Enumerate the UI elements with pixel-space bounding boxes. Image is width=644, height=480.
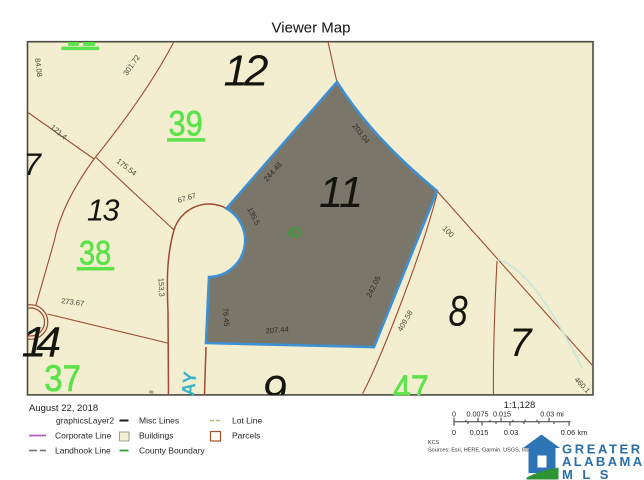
svg-text:9: 9 [262, 366, 287, 416]
svg-text:0.0075: 0.0075 [467, 410, 489, 419]
svg-text:0.03 mi: 0.03 mi [540, 410, 564, 419]
svg-text:Landhook Line: Landhook Line [55, 446, 111, 456]
svg-text:8: 8 [449, 288, 468, 335]
svg-text:37: 37 [44, 358, 81, 399]
svg-text:Viewer Map: Viewer Map [272, 20, 351, 37]
svg-text:7: 7 [509, 321, 533, 365]
svg-text:0: 0 [452, 410, 456, 419]
svg-text:graphicsLayer2: graphicsLayer2 [56, 416, 114, 426]
svg-text:Corporate Line: Corporate Line [55, 431, 112, 441]
svg-text:Parcels: Parcels [232, 431, 260, 441]
svg-text:47: 47 [393, 369, 429, 410]
svg-text:Buildings: Buildings [139, 431, 174, 441]
svg-text:38: 38 [79, 233, 111, 272]
svg-text:0.06 km: 0.06 km [561, 428, 588, 437]
svg-text:39: 39 [169, 104, 203, 143]
svg-text:153.3: 153.3 [157, 278, 167, 297]
svg-text:County Boundary: County Boundary [139, 446, 205, 456]
svg-text:7: 7 [24, 146, 43, 182]
svg-text:MLS: MLS [562, 467, 618, 480]
svg-text:Lot Line: Lot Line [232, 416, 263, 426]
svg-text:0.03: 0.03 [504, 428, 519, 437]
svg-text:Sources: Esri, HERE, Garmin, U: Sources: Esri, HERE, Garmin, USGS, Inter… [428, 448, 541, 454]
svg-text:0.015: 0.015 [493, 410, 511, 419]
svg-text:AY: AY [177, 370, 201, 397]
svg-text:13: 13 [87, 194, 119, 228]
svg-text:Misc Lines: Misc Lines [139, 416, 179, 426]
svg-text:KCS: KCS [428, 440, 440, 446]
svg-text:0.015: 0.015 [470, 428, 489, 437]
svg-text:August 22, 2018: August 22, 2018 [29, 403, 98, 414]
svg-text:0: 0 [452, 428, 456, 437]
svg-text:11: 11 [319, 169, 362, 217]
svg-text:12: 12 [224, 47, 268, 96]
svg-text:40: 40 [288, 225, 302, 241]
svg-text:76.45: 76.45 [221, 308, 231, 327]
